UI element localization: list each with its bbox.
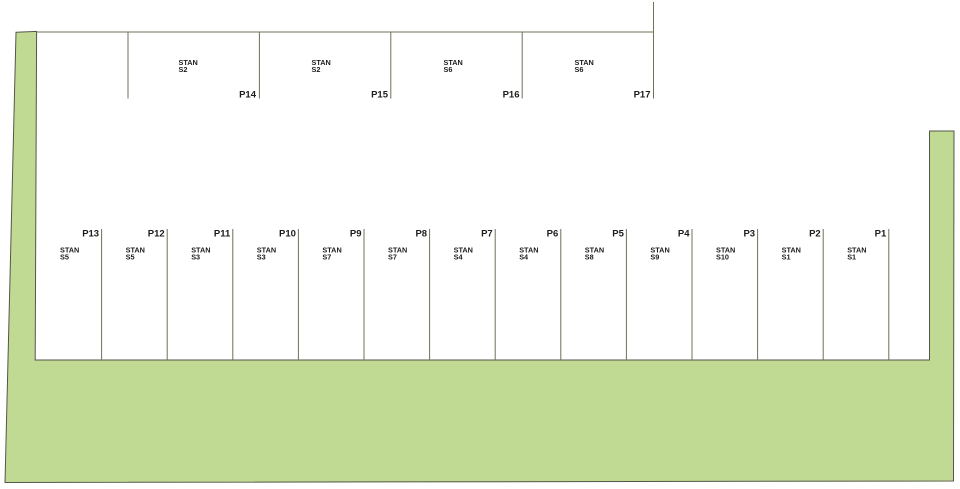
svg-text:P7: P7 [481,229,493,240]
svg-text:S1: S1 [847,252,856,261]
svg-text:P2: P2 [809,229,821,240]
svg-text:S6: S6 [444,65,453,74]
svg-text:S10: S10 [716,252,729,261]
svg-text:P17: P17 [634,90,651,101]
svg-text:S2: S2 [179,65,188,74]
svg-text:P16: P16 [503,90,520,101]
svg-text:P10: P10 [279,229,296,240]
svg-text:P12: P12 [148,229,165,240]
svg-text:P5: P5 [612,229,624,240]
svg-text:S8: S8 [585,252,594,261]
svg-text:S4: S4 [454,252,464,261]
svg-text:P11: P11 [214,229,231,240]
svg-text:P4: P4 [678,229,690,240]
svg-text:S2: S2 [312,65,321,74]
svg-text:P1: P1 [875,229,887,240]
svg-text:P9: P9 [350,229,362,240]
svg-text:S7: S7 [322,252,331,261]
svg-text:P14: P14 [239,90,257,101]
svg-text:S3: S3 [257,252,266,261]
svg-text:S3: S3 [191,252,200,261]
svg-text:S5: S5 [126,252,135,261]
svg-text:P3: P3 [743,229,755,240]
svg-text:S7: S7 [388,252,397,261]
svg-text:P15: P15 [371,90,389,101]
svg-text:S4: S4 [519,252,529,261]
svg-text:P6: P6 [547,229,559,240]
svg-text:S9: S9 [650,252,659,261]
svg-text:P13: P13 [82,229,99,240]
svg-text:S1: S1 [782,252,791,261]
svg-text:S5: S5 [60,252,69,261]
svg-text:S6: S6 [575,65,584,74]
svg-text:P8: P8 [415,229,427,240]
